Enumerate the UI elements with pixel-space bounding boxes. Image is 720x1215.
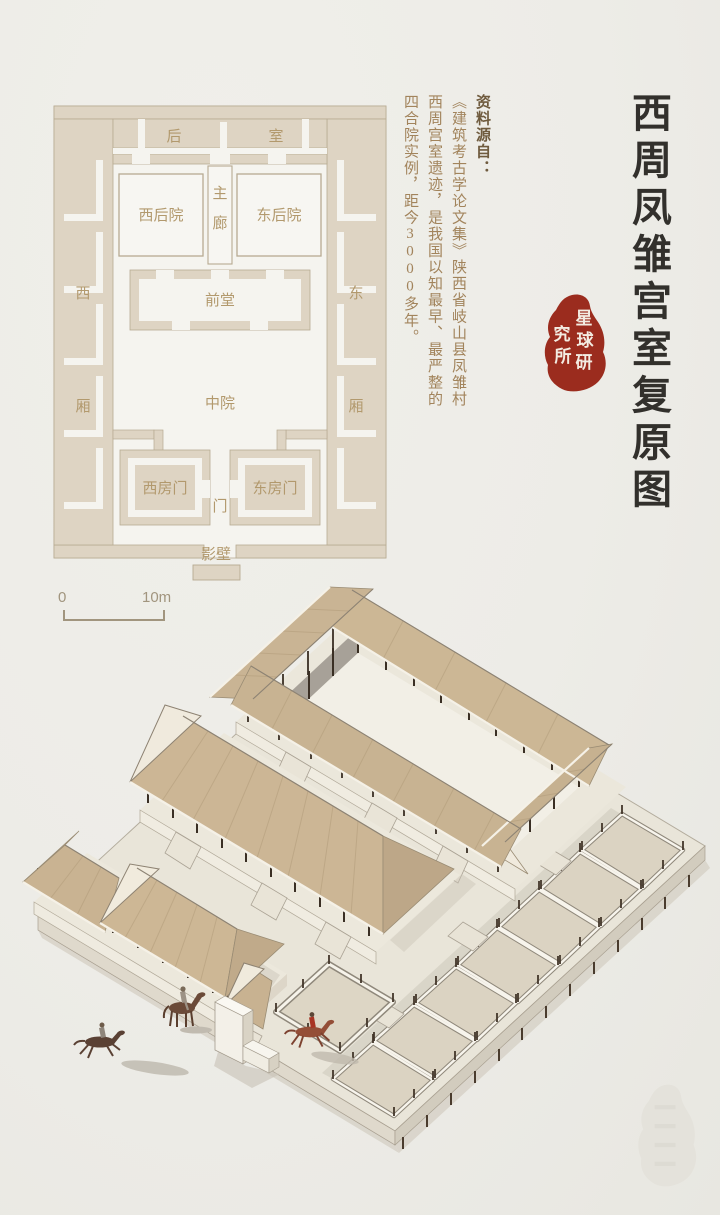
horse-shadow	[180, 1027, 212, 1034]
infographic-page: 后 室 西后院 东后院 主 廊 前堂 中院 西 东 厢 厢 西房门 东房门 门 …	[0, 0, 720, 1215]
horse-and-rider-galloping	[74, 1023, 125, 1059]
horse-shadow	[120, 1057, 189, 1078]
axonometric-rendering	[0, 0, 720, 1215]
watermark-seal	[638, 1085, 696, 1187]
